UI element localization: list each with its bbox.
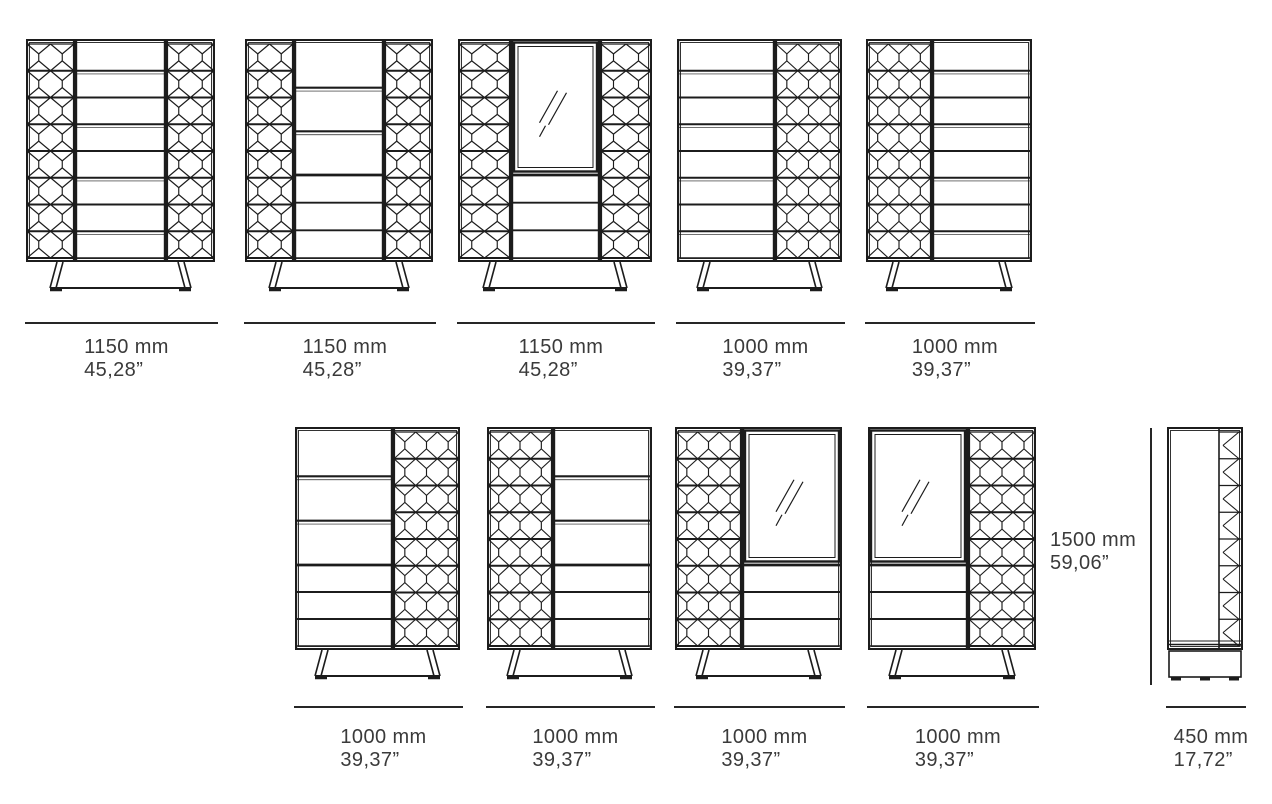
width-dimension-text: 1000 mm39,37” [722,336,808,382]
highboard-1000-glass-door-left-pattern-right-drawing [868,427,1036,683]
highboard-side-view [1167,427,1243,683]
width-dimension-line [676,322,845,324]
width-dimension-text: 1150 mm45,28” [519,336,604,382]
width-mm-label: 1000 mm [912,336,998,359]
highboard-1150-glass-door [458,39,652,295]
highboard-1000-pattern-left-big-drawers-right-drawing [487,427,652,683]
width-inches-label: 39,37” [915,749,1001,772]
highboard-1000-big-drawers-left-pattern-right [295,427,460,683]
width-dimension-text: 1150 mm45,28” [84,336,169,382]
height-inches-label: 59,06” [1050,552,1160,575]
width-dimension-text: 1000 mm39,37” [915,726,1001,772]
highboard-1000-pattern-left-drawers-right-drawing [866,39,1032,295]
width-mm-label: 1150 mm [303,336,388,359]
width-inches-label: 39,37” [912,359,998,382]
width-mm-label: 1150 mm [519,336,604,359]
width-mm-label: 1000 mm [340,726,426,749]
width-dimension-line [865,322,1035,324]
width-mm-label: 1000 mm [722,336,808,359]
highboard-1150-pattern-doors-8-drawers-drawing [26,39,215,295]
width-mm-label: 1000 mm [532,726,618,749]
width-dimension-line [486,706,655,708]
highboard-1000-glass-door-left-pattern-right [868,427,1036,683]
width-mm-label: 1000 mm [721,726,807,749]
highboard-1000-pattern-left-drawers-right [866,39,1032,295]
width-dimension-line [244,322,436,324]
width-mm-label: 1000 mm [915,726,1001,749]
width-dimension-line [457,322,655,324]
width-inches-label: 17,72” [1174,749,1249,772]
highboard-side-view-drawing [1167,427,1243,683]
highboard-1150-glass-door-drawing [458,39,652,295]
width-dimension-text: 1000 mm39,37” [532,726,618,772]
highboard-1000-pattern-left-glass-door-right [675,427,842,683]
width-dimension-line [294,706,463,708]
width-dimension-label: 1150 mm45,28” [235,336,455,382]
width-dimension-label: 1000 mm39,37” [656,336,876,382]
highboard-1000-pattern-left-glass-door-right-drawing [675,427,842,683]
width-inches-label: 39,37” [722,359,808,382]
width-mm-label: 1150 mm [84,336,169,359]
width-dimension-text: 1000 mm39,37” [912,336,998,382]
highboard-1000-drawers-left-pattern-right-drawing [677,39,842,295]
highboard-1000-big-drawers-left-pattern-right-drawing [295,427,460,683]
width-dimension-text: 1150 mm45,28” [303,336,388,382]
height-mm-label: 1500 mm [1050,529,1160,552]
width-dimension-label: 1000 mm39,37” [655,726,875,772]
height-dimension-label: 1500 mm 59,06” [1050,529,1160,575]
width-mm-label: 450 mm [1174,726,1249,749]
width-dimension-label: 1000 mm39,37” [845,336,1065,382]
width-inches-label: 39,37” [532,749,618,772]
width-inches-label: 45,28” [303,359,388,382]
width-inches-label: 45,28” [519,359,604,382]
width-dimension-text: 450 mm17,72” [1174,726,1249,772]
width-dimension-text: 1000 mm39,37” [721,726,807,772]
dimension-diagram: 1500 mm 59,06” 1150 mm45,28”1150 mm45,28… [0,0,1272,804]
width-dimension-line [867,706,1039,708]
width-dimension-label: 1000 mm39,37” [274,726,494,772]
width-dimension-line [674,706,845,708]
width-dimension-line [25,322,218,324]
width-inches-label: 45,28” [84,359,169,382]
width-dimension-label: 1000 mm39,37” [466,726,686,772]
width-dimension-line [1166,706,1246,708]
width-dimension-label: 1000 mm39,37” [848,726,1068,772]
width-dimension-label: 1150 mm45,28” [17,336,237,382]
width-inches-label: 39,37” [340,749,426,772]
highboard-1150-three-big-drawers [245,39,433,295]
highboard-1000-pattern-left-big-drawers-right [487,427,652,683]
highboard-1150-pattern-doors-8-drawers [26,39,215,295]
width-dimension-label: 450 mm17,72” [1101,726,1272,772]
highboard-1000-drawers-left-pattern-right [677,39,842,295]
width-dimension-label: 1150 mm45,28” [451,336,671,382]
highboard-1150-three-big-drawers-drawing [245,39,433,295]
width-inches-label: 39,37” [721,749,807,772]
width-dimension-text: 1000 mm39,37” [340,726,426,772]
